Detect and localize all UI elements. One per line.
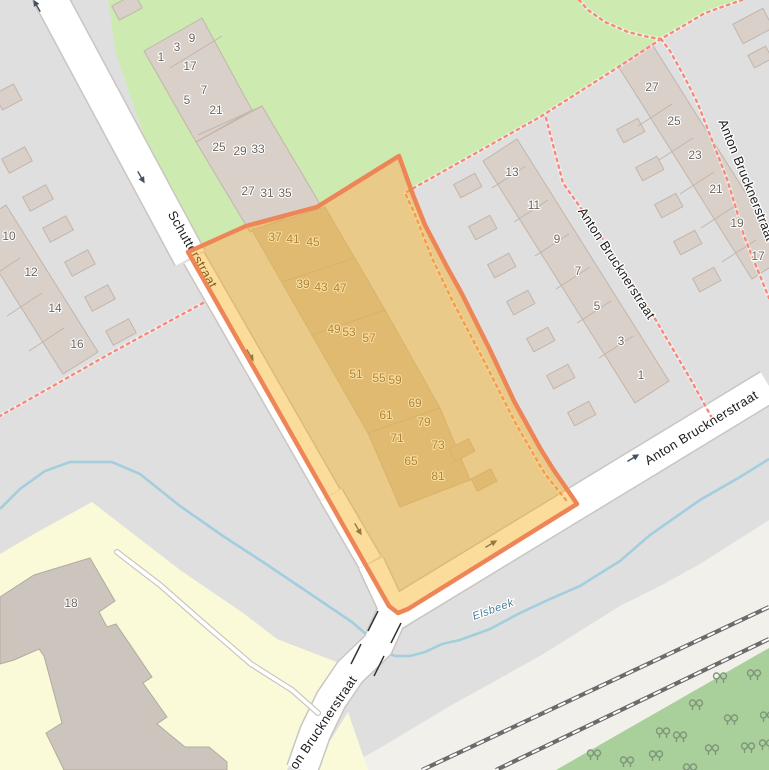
svg-text:5: 5	[594, 299, 601, 313]
svg-text:7: 7	[575, 264, 582, 278]
svg-text:21: 21	[209, 103, 223, 117]
svg-text:1: 1	[158, 50, 165, 64]
svg-text:17: 17	[183, 59, 197, 73]
svg-text:23: 23	[688, 148, 702, 162]
svg-text:11: 11	[528, 198, 541, 212]
svg-text:31: 31	[260, 186, 274, 200]
svg-text:19: 19	[730, 216, 744, 230]
svg-text:25: 25	[212, 140, 226, 154]
svg-text:29: 29	[233, 144, 247, 158]
svg-text:3: 3	[618, 334, 625, 348]
svg-text:13: 13	[505, 165, 519, 179]
svg-text:17: 17	[751, 249, 765, 263]
svg-text:33: 33	[251, 142, 265, 156]
svg-text:9: 9	[189, 31, 196, 45]
svg-text:10: 10	[2, 229, 16, 243]
svg-text:21: 21	[709, 182, 723, 196]
svg-text:1: 1	[638, 368, 645, 382]
svg-text:18: 18	[64, 596, 78, 610]
svg-text:27: 27	[645, 80, 659, 94]
svg-text:3: 3	[174, 40, 181, 54]
svg-text:16: 16	[70, 337, 84, 351]
svg-text:25: 25	[667, 114, 681, 128]
svg-text:14: 14	[48, 301, 62, 315]
svg-text:12: 12	[24, 265, 38, 279]
svg-text:35: 35	[278, 186, 292, 200]
svg-text:27: 27	[241, 184, 255, 198]
svg-text:7: 7	[201, 83, 208, 97]
svg-text:9: 9	[554, 232, 561, 246]
svg-text:5: 5	[184, 93, 191, 107]
